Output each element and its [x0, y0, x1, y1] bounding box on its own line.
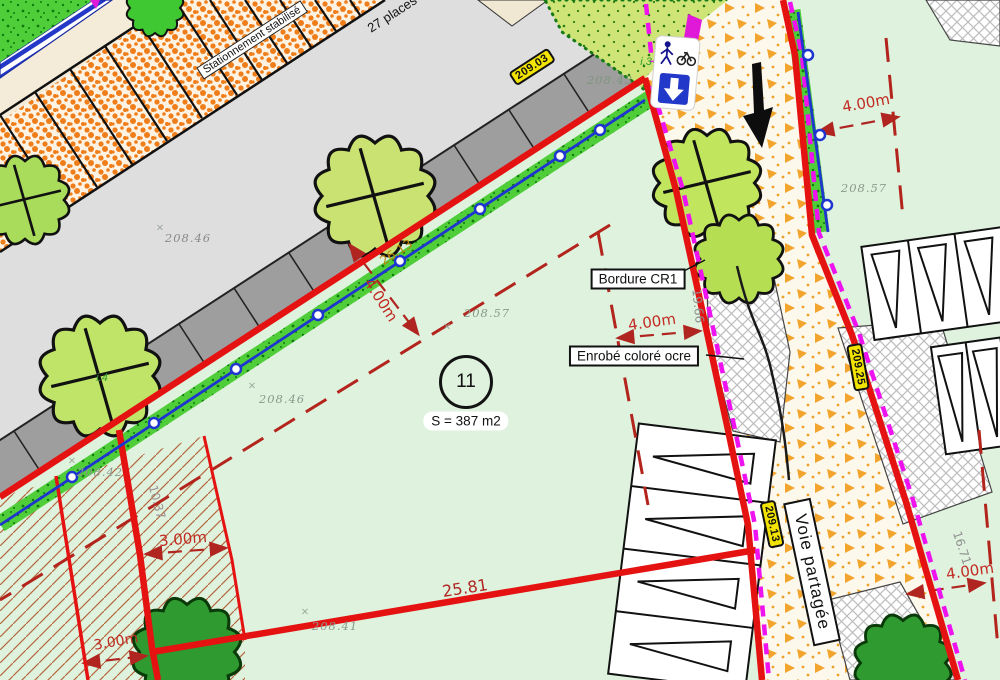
spot-level-marker: × [248, 381, 256, 392]
spot-level: 208.41 [312, 619, 358, 633]
spot-level: 208.43 [587, 73, 633, 87]
parcel-number-circle: 11 [439, 355, 493, 409]
spot-level-marker: × [68, 456, 76, 467]
ref-label-i4: i.4 [96, 372, 108, 384]
spot-level: 208.57 [841, 181, 887, 195]
spot-level-marker: × [301, 607, 309, 618]
spot-level: 208.46 [259, 392, 305, 406]
spot-level: 208.57 [464, 306, 510, 320]
parcel-area-label: S = 387 m2 [423, 412, 508, 431]
spot-level: 208.46 [165, 231, 211, 245]
ref-label-i3: i.3 [640, 56, 652, 68]
enrobe-label: Enrobé coloré ocre [569, 346, 699, 367]
parking-stalls-top-right [861, 227, 1000, 340]
spot-level-marker: × [443, 322, 451, 333]
site-plan-canvas: Stationnement stabilisé 27 places 209.03… [0, 0, 1000, 680]
shared-zone-sign-icon [649, 34, 702, 117]
spot-level-marker: × [156, 223, 164, 234]
bordure-label: Bordure CR1 [591, 269, 686, 290]
spot-level: 208.42 [77, 465, 123, 479]
